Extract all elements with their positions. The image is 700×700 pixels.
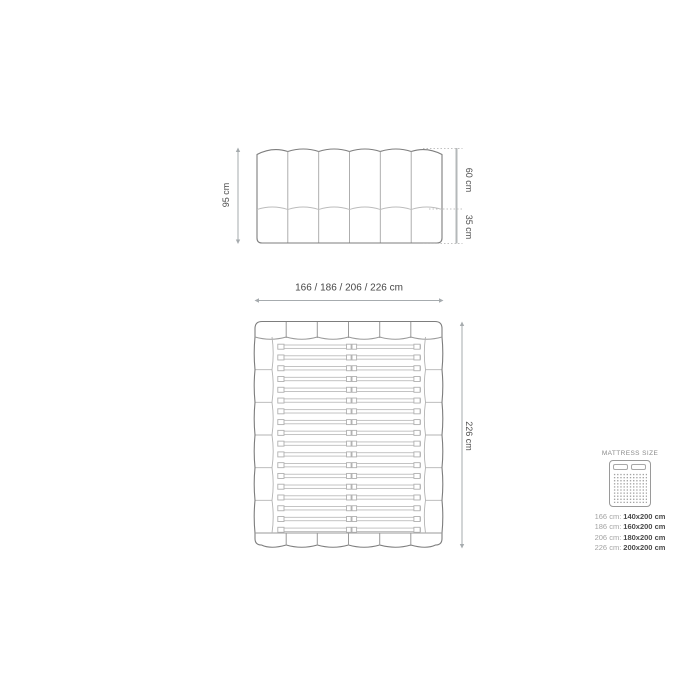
slat-holder <box>414 473 420 478</box>
dimension-diagram-page: 95 cm 60 cm 35 cm 166 / 186 / 206 / 226 … <box>0 0 700 700</box>
slat-holder <box>414 387 420 392</box>
mattress-size-list: 166 cm:140x200 cm 186 cm:160x200 cm 206 … <box>592 512 668 554</box>
slat-holder <box>352 506 357 511</box>
slat-holder <box>278 377 284 382</box>
slat-holder <box>347 420 352 425</box>
slat-holder <box>347 398 352 403</box>
bed-length-label: 226 cm <box>464 421 474 451</box>
slat-holder <box>414 484 420 489</box>
bed-width-value: 206 cm: <box>595 533 622 542</box>
mattress-size-row: 186 cm:160x200 cm <box>592 522 668 532</box>
slat-holder <box>414 430 420 435</box>
slat-holder <box>278 398 284 403</box>
headboard-upper-height-label: 60 cm <box>464 168 474 193</box>
arrow-down-icon <box>460 544 464 549</box>
slat-holder <box>414 452 420 457</box>
slat-holder <box>414 366 420 371</box>
slat-holder <box>352 527 357 532</box>
slat-holder <box>352 377 357 382</box>
slat-holder <box>347 473 352 478</box>
slat-holder <box>352 463 357 468</box>
mattress-dots-texture <box>613 473 647 503</box>
mattress-size-value: 180x200 cm <box>623 533 665 542</box>
mattress-size-row: 206 cm:180x200 cm <box>592 533 668 543</box>
slat-holder <box>278 527 284 532</box>
slat-holder <box>352 495 357 500</box>
slat-holder <box>278 366 284 371</box>
slat-holder <box>347 441 352 446</box>
slat-holder <box>278 420 284 425</box>
slat-holder <box>347 409 352 414</box>
slat-holder <box>352 366 357 371</box>
mattress-size-value: 200x200 cm <box>623 543 665 552</box>
slat-holder <box>352 473 357 478</box>
slat-holder <box>352 344 357 349</box>
headboard-channel-dividers <box>288 152 411 243</box>
mattress-icon <box>609 460 651 507</box>
mattress-size-row: 166 cm:140x200 cm <box>592 512 668 522</box>
right-rail-inner-edge <box>424 337 425 533</box>
bed-top-view <box>240 270 490 565</box>
slat-holder <box>352 409 357 414</box>
slat-holder <box>414 420 420 425</box>
bed-width-value: 186 cm: <box>595 522 622 531</box>
footboard-bar-dividers <box>286 533 411 546</box>
slat-holder <box>278 355 284 360</box>
slat-holder <box>352 398 357 403</box>
left-rail-inner-edge <box>272 337 273 533</box>
headboard-lower-height-label: 35 cm <box>464 215 474 240</box>
slat-holder <box>278 409 284 414</box>
slat-holder <box>414 355 420 360</box>
slat-holder <box>347 344 352 349</box>
slat-holder <box>347 527 352 532</box>
mattress-size-legend: MATTRESS SIZE 166 cm:140x200 cm 186 cm:1… <box>592 450 668 554</box>
slat-holder <box>414 344 420 349</box>
slat-holder <box>352 484 357 489</box>
pillow-icon <box>613 464 628 470</box>
slat-holder <box>347 517 352 522</box>
mattress-size-row: 226 cm:200x200 cm <box>592 543 668 553</box>
slat-holder <box>278 484 284 489</box>
slat-holder <box>352 355 357 360</box>
bed-width-label: 166 / 186 / 206 / 226 cm <box>295 283 403 294</box>
slat-holder <box>414 495 420 500</box>
bed-width-value: 166 cm: <box>595 512 622 521</box>
slat-holder <box>347 463 352 468</box>
arrow-down-icon <box>236 240 240 245</box>
slat-holder <box>278 463 284 468</box>
arrow-up-icon <box>460 322 464 327</box>
slat-holder <box>414 441 420 446</box>
slat-holder <box>278 430 284 435</box>
slat-holder <box>414 517 420 522</box>
slat-holder <box>278 506 284 511</box>
headboard-bar-dividers <box>286 322 411 338</box>
slat-holder <box>414 463 420 468</box>
slat-holder <box>414 377 420 382</box>
pillow-icon <box>631 464 646 470</box>
mattress-size-value: 140x200 cm <box>623 512 665 521</box>
slat-holder <box>347 366 352 371</box>
arrow-up-icon <box>236 148 240 153</box>
slat-holder <box>347 506 352 511</box>
slat-holder <box>347 377 352 382</box>
slat-holder <box>352 517 357 522</box>
arrow-right-icon <box>439 298 444 302</box>
slat-holder <box>347 484 352 489</box>
slat-holder <box>352 441 357 446</box>
slat-holder <box>352 430 357 435</box>
slat-holder <box>278 441 284 446</box>
slat-holder <box>352 452 357 457</box>
arrow-left-icon <box>255 298 260 302</box>
headboard-front-view <box>210 130 490 260</box>
slat-holder <box>414 506 420 511</box>
slat-holder <box>278 473 284 478</box>
slat-holder <box>347 495 352 500</box>
slat-holder <box>278 344 284 349</box>
slat-holder <box>414 527 420 532</box>
slat-holder <box>278 495 284 500</box>
slat-holder <box>347 387 352 392</box>
slat-holder <box>278 517 284 522</box>
slat-holder <box>278 452 284 457</box>
slat-holder <box>414 398 420 403</box>
slat-holder <box>347 355 352 360</box>
slat-holder <box>278 387 284 392</box>
bed-width-value: 226 cm: <box>595 543 622 552</box>
mattress-size-value: 160x200 cm <box>623 522 665 531</box>
slat-holder <box>352 420 357 425</box>
slat-holder <box>352 387 357 392</box>
legend-title: MATTRESS SIZE <box>592 450 668 457</box>
headboard-height-label: 95 cm <box>221 183 231 208</box>
slat-holder <box>347 430 352 435</box>
slat-holder <box>414 409 420 414</box>
slats <box>278 344 421 532</box>
slat-holder <box>347 452 352 457</box>
